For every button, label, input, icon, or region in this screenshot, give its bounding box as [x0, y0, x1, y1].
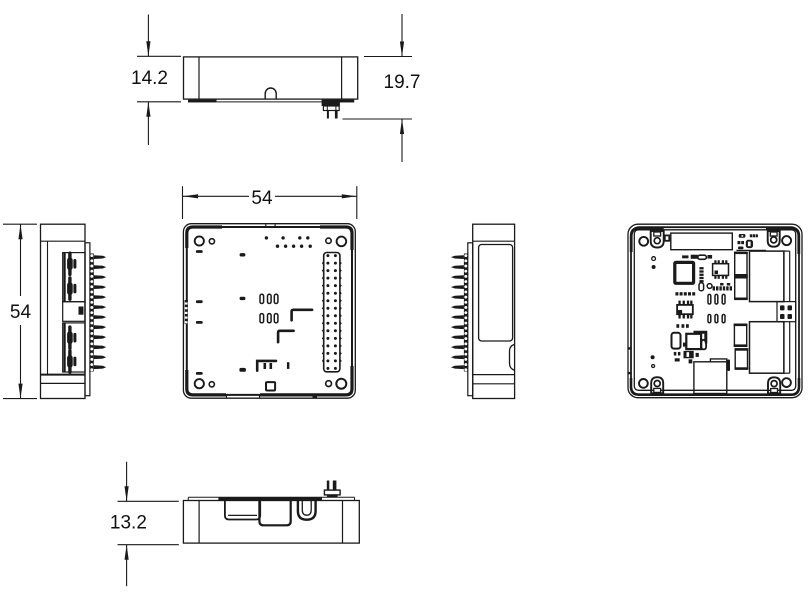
- svg-text:14.2: 14.2: [131, 68, 168, 89]
- svg-text:13.2: 13.2: [110, 513, 147, 534]
- svg-text:54: 54: [10, 302, 32, 323]
- svg-text:54: 54: [251, 188, 273, 209]
- svg-text:19.7: 19.7: [384, 72, 421, 93]
